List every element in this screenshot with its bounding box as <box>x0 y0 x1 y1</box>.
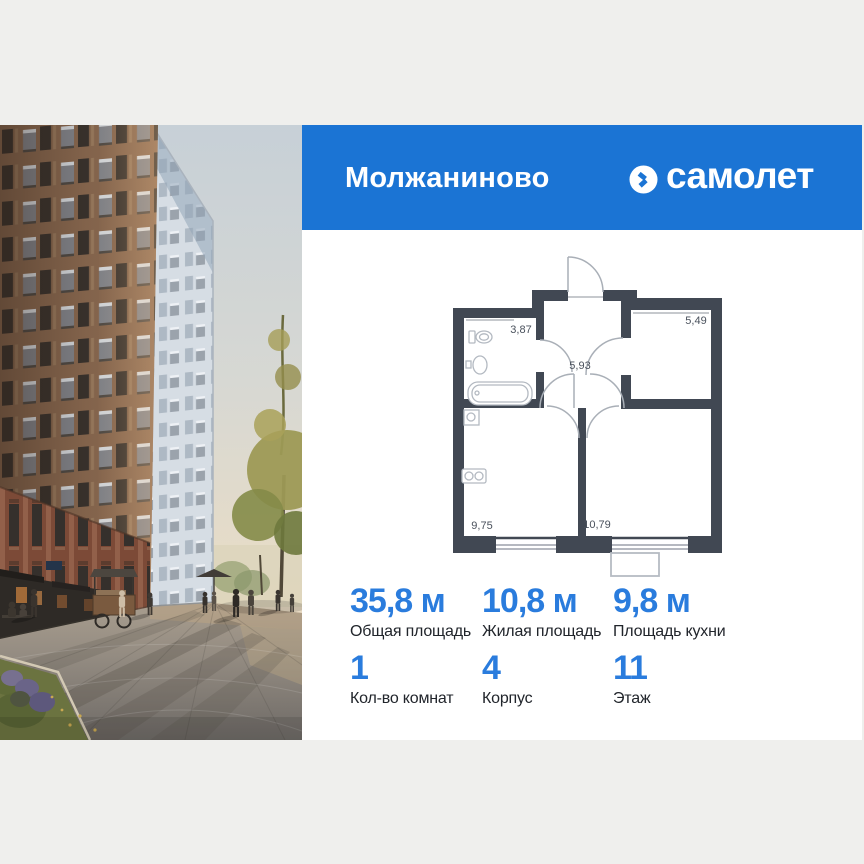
stat-label: Площадь кухни <box>613 623 725 641</box>
stat-label: Этаж <box>613 690 650 708</box>
listing-card: Молжаниново самолет <box>0 0 864 864</box>
room-area-label: 5,49 <box>685 315 706 327</box>
street-photo-illustration <box>0 125 302 740</box>
stat-value: 11 <box>613 651 650 685</box>
hallway-area-label: 5,93 <box>569 360 590 372</box>
stat-total-area: 35,8 м Общая площадь <box>350 584 471 641</box>
samolet-arrow-icon <box>629 165 658 194</box>
bathroom-area-label: 3,87 <box>510 324 531 336</box>
stat-value: 1 <box>350 651 453 685</box>
bathroom-fixtures <box>466 331 532 405</box>
room-area-labels: 3,87 5,93 5,49 9,75 10,79 <box>471 315 706 532</box>
floor-plan: 3,87 5,93 5,49 9,75 10,79 <box>440 245 740 585</box>
stat-value: 9,8 м <box>613 584 725 618</box>
storefront-sign <box>46 561 62 570</box>
kitchen-fixtures <box>462 410 486 483</box>
brand-logo: самолет <box>629 160 814 198</box>
stat-building-number: 4 Корпус <box>482 651 532 708</box>
stat-kitchen-area: 9,8 м Площадь кухни <box>613 584 725 641</box>
balcony-outline <box>611 553 659 576</box>
living-room-area-label: 10,79 <box>583 519 611 531</box>
stat-label: Жилая площадь <box>482 623 601 641</box>
stat-rooms-count: 1 Кол-во комнат <box>350 651 453 708</box>
kitchen-area-label: 9,75 <box>471 520 492 532</box>
project-title: Молжаниново <box>345 162 550 195</box>
brand-name: самолет <box>666 161 814 190</box>
stat-value: 10,8 м <box>482 584 601 618</box>
building-street-photo <box>0 125 302 740</box>
stat-value: 35,8 м <box>350 584 471 618</box>
stat-label: Кол-во комнат <box>350 690 453 708</box>
stat-label: Корпус <box>482 690 532 708</box>
stat-label: Общая площадь <box>350 623 471 641</box>
stat-living-area: 10,8 м Жилая площадь <box>482 584 601 641</box>
foreground-vignette <box>0 717 302 740</box>
stat-floor-number: 11 Этаж <box>613 651 650 708</box>
walls <box>453 290 722 553</box>
stat-value: 4 <box>482 651 532 685</box>
